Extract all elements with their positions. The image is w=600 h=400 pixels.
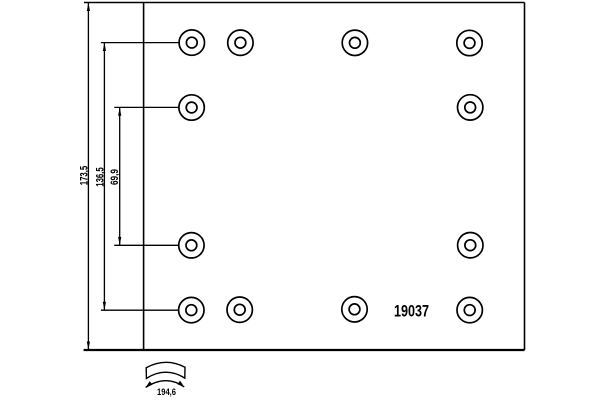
svg-text:69,9: 69,9	[109, 169, 121, 185]
svg-text:194,6: 194,6	[157, 387, 176, 398]
svg-text:173,5: 173,5	[79, 166, 91, 186]
svg-text:19037: 19037	[394, 303, 429, 321]
svg-text:136,5: 136,5	[94, 167, 106, 187]
